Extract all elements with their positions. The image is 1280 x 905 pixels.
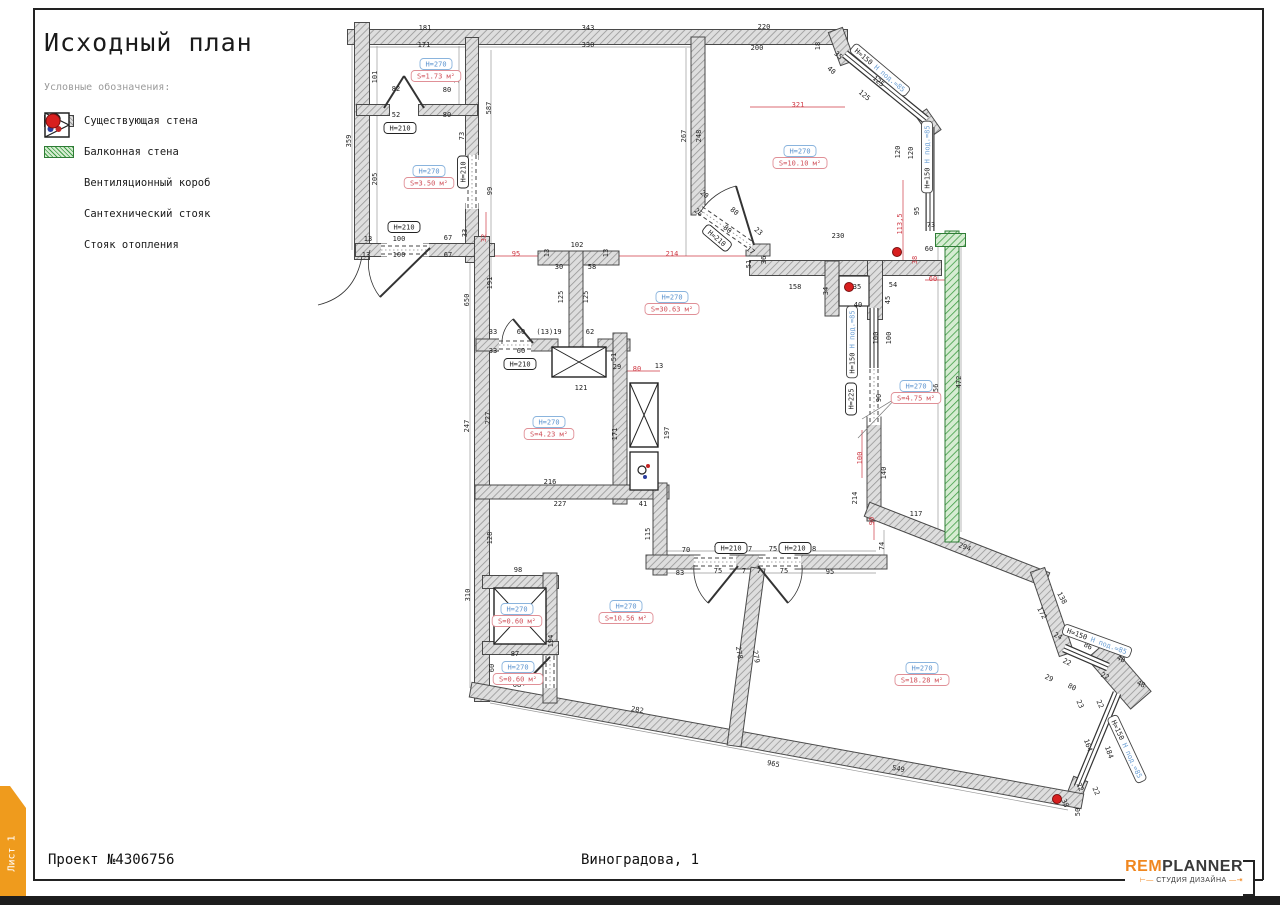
dim-label: 60 xyxy=(488,664,496,672)
room-area-label-text: S=3.50 м² xyxy=(410,180,448,188)
dim-label: 117 xyxy=(910,510,923,518)
dim-label: 220 xyxy=(758,23,771,31)
dim-label: 310 xyxy=(464,589,472,602)
dimension-line xyxy=(490,703,1068,810)
dim-label: 34 xyxy=(822,287,830,295)
dim-label: 205 xyxy=(371,173,379,186)
dim-label: 158 xyxy=(789,283,802,291)
dim-label: 67 xyxy=(444,234,452,242)
dim-label: 67 xyxy=(444,251,452,259)
dim-label: 101 xyxy=(371,71,379,84)
dim-label: 33 xyxy=(489,328,497,336)
room-area-label: S=10.56 м² xyxy=(599,613,653,624)
room-height-label-text: H=270 xyxy=(425,61,446,69)
legend-item-balcony: Балконная стена xyxy=(44,143,274,161)
dim-label: 121 xyxy=(575,384,588,392)
dim-label: 164 xyxy=(1082,738,1094,753)
dim-label: 13 xyxy=(543,249,551,257)
room-area-label-text: S=0.60 м² xyxy=(498,618,536,626)
dim-label: 90 xyxy=(868,517,876,525)
dim-label: 95 xyxy=(913,207,921,215)
room-height-label: H=270 xyxy=(533,417,565,428)
dim-label: 100 xyxy=(872,332,880,345)
frame-top-line xyxy=(33,8,1263,10)
dim-label: 95 xyxy=(826,568,834,576)
door-swing-arc xyxy=(788,565,802,603)
room-area-label-text: S=1.73 м² xyxy=(417,73,455,81)
dim-label: 82 xyxy=(392,85,400,93)
door-height-label: H=225 xyxy=(846,383,857,415)
dim-label: 60 xyxy=(925,245,933,253)
legend-item-vent: Вентиляционный короб xyxy=(44,174,274,192)
legend: Существующая стенаБалконная стенаВентиля… xyxy=(44,112,274,267)
door-height-label-text: H=210 xyxy=(460,161,468,182)
logo-subtitle: ⊢— СТУДИЯ ДИЗАЙНА —⇥ xyxy=(1125,876,1243,884)
dim-label: 52 xyxy=(392,111,400,119)
room-area-label: S=4.75 м² xyxy=(891,393,941,404)
door-height-label: H=210 xyxy=(779,543,811,554)
logo-dash-right: —⇥ xyxy=(1229,877,1243,884)
dim-label: 45 xyxy=(884,296,892,304)
legend-label: Сантехнический стояк xyxy=(84,208,210,220)
dim-label: 80 xyxy=(443,111,451,119)
dim-label: 90 xyxy=(875,394,883,402)
dim-label: 197 xyxy=(663,427,671,440)
dim-label: 267 xyxy=(680,130,688,143)
dim-label: 359 xyxy=(345,135,353,148)
room-height-label-text: H=270 xyxy=(911,665,932,673)
room-area-label-text: S=4.23 м² xyxy=(530,431,568,439)
dim-label: 184 xyxy=(1103,745,1115,760)
dim-label: 80 xyxy=(728,206,740,218)
dim-label: 13 xyxy=(362,251,370,259)
dim-label: 100 xyxy=(856,452,864,465)
sheet-tab-label: Лист 1 xyxy=(7,824,18,884)
dim-label: 13 xyxy=(655,362,663,370)
door-height-label-text: H=210 xyxy=(509,361,530,369)
dim-label: 120 xyxy=(907,147,915,160)
room-height-label: H=270 xyxy=(784,146,816,157)
door-height-label: H=210 xyxy=(504,359,536,370)
room-height-label: H=270 xyxy=(906,663,938,674)
dim-label: 75 xyxy=(780,567,788,575)
room-height-label-text: H=270 xyxy=(418,168,439,176)
dim-label: 35 xyxy=(853,283,861,291)
dim-label: 650 xyxy=(463,294,471,307)
room-area-label-text: S=18.28 м² xyxy=(901,677,943,685)
room-area-label-text: S=10.56 м² xyxy=(605,615,647,623)
legend-label: Балконная стена xyxy=(84,146,179,158)
window-height-label-text: H=150 H под.=85 xyxy=(924,125,932,188)
dim-label: 200 xyxy=(751,44,764,52)
dim-label: 216 xyxy=(544,478,557,486)
remplanner-logo: REMPLANNER ⊢— СТУДИЯ ДИЗАЙНА —⇥ xyxy=(1125,858,1255,894)
room-area-label-text: S=4.75 м² xyxy=(897,395,935,403)
dim-label: 120 xyxy=(894,146,902,159)
door-height-label-text: H=210 xyxy=(720,545,741,553)
window-height-label: H=150 H под.=85 xyxy=(847,306,858,378)
dim-label: 247 xyxy=(463,420,471,433)
room-height-label: H=270 xyxy=(420,59,452,70)
dim-label: 330 xyxy=(582,41,595,49)
logo-dash-left: ⊢— xyxy=(1140,877,1154,884)
legend-title: Условные обозначения: xyxy=(44,82,170,93)
door-swing-arc xyxy=(318,256,362,305)
room-height-label: H=270 xyxy=(610,601,642,612)
dim-label: 113,5 xyxy=(896,213,904,234)
room-area-label: S=18.28 м² xyxy=(895,675,949,686)
dim-label: 321 xyxy=(792,101,805,109)
dim-label: 115 xyxy=(644,528,652,541)
dim-label: 102 xyxy=(571,241,584,249)
dim-label: 23 xyxy=(1074,699,1085,710)
dim-label: 128 xyxy=(486,532,494,545)
dim-label: 7 xyxy=(757,567,761,575)
door-height-label: H=210 xyxy=(458,156,469,188)
door-height-label-text: H=210 xyxy=(389,125,410,133)
room-area-label: S=4.23 м² xyxy=(524,429,574,440)
wall-hatch xyxy=(478,691,1075,800)
legend-label: Существующая стена xyxy=(84,115,198,127)
heating-riser xyxy=(893,248,902,257)
plumbing-riser-cold xyxy=(643,475,647,479)
room-area-label: S=30.63 м² xyxy=(645,304,699,315)
sheet-tab[interactable]: Лист 1 xyxy=(0,786,26,905)
room-height-label-text: H=270 xyxy=(538,419,559,427)
dim-label: 100 xyxy=(885,332,893,345)
project-number: Проект №4306756 xyxy=(48,852,174,868)
dim-label: (13)19 xyxy=(536,328,561,336)
dim-label: 100 xyxy=(393,235,406,243)
dim-label: 140 xyxy=(880,467,888,480)
room-area-label: S=1.73 м² xyxy=(411,71,461,82)
legend-item-heat: Стояк отопления xyxy=(44,236,274,254)
door-height-label: H=210 xyxy=(715,543,747,554)
balcony-wall-swatch xyxy=(44,146,74,158)
room-area-label: S=0.60 м² xyxy=(492,616,542,627)
dim-label: 80 xyxy=(633,365,641,373)
dim-label: 965 xyxy=(766,759,780,769)
dim-label: 32 xyxy=(480,234,488,242)
room-height-label-text: H=270 xyxy=(507,664,528,672)
dim-label: 58 xyxy=(588,263,596,271)
legend-label: Вентиляционный короб xyxy=(84,177,210,189)
room-area-label: S=10.10 м² xyxy=(773,158,827,169)
page-title: Исходный план xyxy=(44,28,253,57)
room-height-label: H=270 xyxy=(502,662,534,673)
logo-rem: REM xyxy=(1125,858,1162,875)
window-centerline xyxy=(845,54,926,120)
door-height-label-text: H=210 xyxy=(393,224,414,232)
dim-label: 13 xyxy=(602,249,610,257)
dim-label: 60 xyxy=(517,347,525,355)
legend-item-wall: Существующая стена xyxy=(44,112,274,130)
dim-label: 171 xyxy=(418,41,431,49)
dim-label: 75 xyxy=(714,567,722,575)
dim-label: 95 xyxy=(512,250,520,258)
legend-label: Стояк отопления xyxy=(84,239,179,251)
room-height-label-text: H=270 xyxy=(661,294,682,302)
room-height-label: H=270 xyxy=(413,166,445,177)
logo-bracket xyxy=(1243,860,1255,896)
dim-label: 587 xyxy=(485,102,493,115)
room-height-label: H=270 xyxy=(501,604,533,615)
frame-right-line xyxy=(1262,8,1264,880)
dim-label: 227 xyxy=(554,500,567,508)
door-height-label-text: H=210 xyxy=(784,545,805,553)
dim-label: 125 xyxy=(857,88,872,102)
dim-label: 278 xyxy=(734,646,744,660)
dim-label: 80 xyxy=(443,86,451,94)
dim-label: 230 xyxy=(832,232,845,240)
room-area-label: S=0.60 м² xyxy=(493,674,543,685)
dim-label: 472 xyxy=(955,376,963,389)
dim-label: 33 xyxy=(489,347,497,355)
dim-label: 343 xyxy=(582,24,595,32)
dim-label: 23 xyxy=(752,226,764,238)
dim-label: 13 xyxy=(364,235,372,243)
door-height-label-text: H=225 xyxy=(848,388,856,409)
dim-label: 191 xyxy=(486,277,494,290)
dim-label: 22 xyxy=(1061,657,1072,668)
dim-label: 40 xyxy=(825,65,837,77)
door-leaf xyxy=(708,566,738,603)
window-height-label-text: H=150 H под.=85 xyxy=(849,310,857,373)
heating-riser-swatch xyxy=(44,112,62,130)
plumbing-riser-hot xyxy=(646,464,650,468)
dim-label: 38 xyxy=(911,256,919,264)
dim-label: 99 xyxy=(486,187,494,195)
dim-label: 29 xyxy=(1043,673,1054,684)
dim-label: 100 xyxy=(393,251,406,259)
dim-label: 227 xyxy=(484,412,492,425)
dim-label: 41 xyxy=(639,500,647,508)
dim-label: 18 xyxy=(814,42,822,50)
room-area-label: S=3.50 м² xyxy=(404,178,454,189)
room-height-label-text: H=270 xyxy=(789,148,810,156)
dim-label: 194 xyxy=(547,635,555,648)
dim-label: 33 xyxy=(461,229,469,237)
sheet: 1813432201713302001011018280528035920573… xyxy=(0,0,1280,905)
dim-label: 51 xyxy=(610,353,618,361)
dim-label: 22 xyxy=(1094,699,1105,710)
dim-label: 29 xyxy=(613,363,621,371)
dim-label: 214 xyxy=(666,250,679,258)
dim-label: 214 xyxy=(851,492,859,505)
window-height-label-text: H=150 H под.=85 xyxy=(1109,719,1143,780)
room-height-label: H=270 xyxy=(900,381,932,392)
dim-label: 74 xyxy=(878,542,886,550)
dim-label: 7 xyxy=(742,567,746,575)
dim-label: 62 xyxy=(586,328,594,336)
dim-label: 22 xyxy=(1090,786,1101,797)
door-height-label: H=210 xyxy=(384,123,416,134)
dim-label: 125 xyxy=(557,291,565,304)
dim-label: 36 xyxy=(760,256,768,264)
room-area-label-text: S=10.10 м² xyxy=(779,160,821,168)
dim-label: 83 xyxy=(676,569,684,577)
dim-label: 181 xyxy=(419,24,432,32)
room-height-label-text: H=270 xyxy=(506,606,527,614)
room-height-label-text: H=270 xyxy=(615,603,636,611)
dim-label: 125 xyxy=(582,291,590,304)
frame-bottom-line xyxy=(33,879,1263,881)
room-area-label-text: S=30.63 м² xyxy=(651,306,693,314)
dim-label: 60 xyxy=(929,275,937,283)
legend-item-plumb: Сантехнический стояк xyxy=(44,205,274,223)
logo-wordmark: REMPLANNER xyxy=(1125,858,1243,876)
dim-label: 51 xyxy=(745,260,753,268)
room-height-label-text: H=270 xyxy=(905,383,926,391)
bottom-bar xyxy=(0,896,1280,905)
window-height-label: H=150 H под.=85 xyxy=(922,121,933,193)
dim-label: 60 xyxy=(517,328,525,336)
plumbing-riser xyxy=(638,466,646,474)
frame-left-line xyxy=(33,8,35,880)
dim-label: 54 xyxy=(889,281,897,289)
dim-label: 70 xyxy=(682,546,690,554)
dim-label: 30 xyxy=(555,263,563,271)
dim-label: 248 xyxy=(695,130,703,143)
dim-label: 171 xyxy=(611,428,619,441)
dim-label: 80 xyxy=(1066,682,1077,693)
dim-label: 73 xyxy=(458,132,466,140)
room-height-label: H=270 xyxy=(656,292,688,303)
door-height-label: H=210 xyxy=(388,222,420,233)
logo-planner: PLANNER xyxy=(1162,858,1243,875)
dim-label: 98 xyxy=(514,566,522,574)
address: Виноградова, 1 xyxy=(581,852,699,868)
room-area-label-text: S=0.60 м² xyxy=(499,676,537,684)
dim-label: 75 xyxy=(769,545,777,553)
door-swing-arc xyxy=(694,565,708,603)
dim-label: 87 xyxy=(511,650,519,658)
dim-label: 73 xyxy=(927,221,935,229)
dim-label: 50 xyxy=(1074,808,1082,816)
